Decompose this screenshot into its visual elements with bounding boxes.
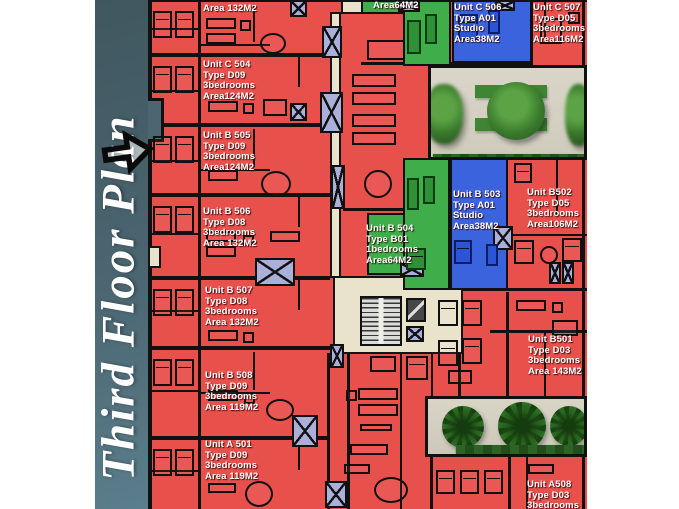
wall-segment bbox=[298, 57, 300, 87]
unit-label-line: Unit B502 bbox=[527, 188, 579, 199]
unit-label-line: Studio bbox=[454, 24, 501, 35]
bed-icon bbox=[175, 136, 194, 163]
sofa-icon bbox=[486, 244, 498, 266]
unit-label-line: Unit B 507 bbox=[205, 286, 259, 297]
unit-label-partial-top-green: Area64M2 bbox=[373, 1, 419, 12]
sofa-icon bbox=[407, 178, 419, 210]
unit-label-line: 1bedrooms bbox=[366, 245, 418, 256]
unit-label-line: 3bedrooms bbox=[533, 24, 585, 35]
table-icon bbox=[370, 356, 396, 372]
bed-icon bbox=[562, 238, 582, 262]
courtyard-garden-top bbox=[428, 65, 587, 160]
wall-segment bbox=[431, 354, 433, 398]
sofa-icon bbox=[423, 176, 435, 204]
unit-label-line: 3bedrooms bbox=[203, 152, 255, 163]
bed-icon bbox=[175, 449, 194, 476]
unit-label-line: 3bedrooms bbox=[203, 228, 257, 239]
sofa-icon bbox=[528, 464, 554, 474]
unit-label-line: 3bedrooms bbox=[527, 501, 579, 509]
elevator-icon bbox=[292, 415, 318, 447]
floor-plan-canvas: 3bedroomsArea 132M2 Area64M2 Unit C 506T… bbox=[148, 0, 587, 509]
bed-icon bbox=[153, 66, 172, 93]
unit-label-line: 3bedrooms bbox=[205, 392, 258, 403]
bed-icon bbox=[175, 359, 194, 386]
wall-segment bbox=[298, 197, 300, 227]
tree-icon bbox=[565, 84, 587, 146]
unit-label-c506: Unit C 506Type A01StudioArea38M2 bbox=[454, 3, 501, 45]
wall-segment bbox=[343, 208, 405, 211]
unit-label-b501: Unit B501Type D033bedroomsArea 143M2 bbox=[528, 335, 582, 377]
unit-label-line: Unit C 507 bbox=[533, 3, 585, 14]
palm-tree-icon bbox=[442, 406, 484, 448]
wall-segment bbox=[148, 346, 330, 350]
sofa-icon bbox=[350, 444, 388, 455]
palm-tree-icon bbox=[498, 402, 546, 450]
wall-segment bbox=[148, 276, 330, 280]
elevator-icon bbox=[406, 326, 424, 342]
bed-icon bbox=[175, 11, 194, 38]
elevator-icon bbox=[290, 103, 307, 121]
elevator-icon bbox=[330, 344, 344, 368]
courtyard-garden-bottom bbox=[425, 396, 587, 457]
bed-icon bbox=[153, 449, 172, 476]
wall-segment bbox=[148, 390, 198, 392]
table-icon bbox=[364, 170, 392, 198]
bed-icon bbox=[462, 300, 482, 326]
elevator-icon bbox=[549, 262, 561, 284]
unit-label-b502: Unit B502Type D053bedroomsArea106M2 bbox=[527, 188, 579, 230]
unit-label-line: Unit B 503 bbox=[453, 190, 500, 201]
bed-icon bbox=[153, 11, 172, 38]
elevator-icon bbox=[255, 258, 295, 286]
unit-label-line: 3bedrooms bbox=[527, 209, 579, 220]
hedge-icon bbox=[456, 445, 587, 456]
wall-segment bbox=[506, 292, 509, 396]
unit-label-line: Unit B501 bbox=[528, 335, 582, 346]
unit-label-b507: Unit B 507Type D083bedroomsArea 132M2 bbox=[205, 286, 259, 328]
table-icon bbox=[360, 424, 392, 431]
unit-label-line: Area64M2 bbox=[366, 256, 418, 267]
table-icon bbox=[263, 99, 287, 116]
sofa-icon bbox=[407, 20, 421, 54]
bed-icon bbox=[514, 163, 532, 183]
bed-icon bbox=[175, 289, 194, 316]
unit-label-line: Area38M2 bbox=[454, 35, 501, 46]
chair-icon bbox=[240, 20, 251, 31]
sofa-icon bbox=[206, 33, 236, 44]
unit-label-line: Area38M2 bbox=[453, 222, 500, 233]
table-icon bbox=[260, 33, 286, 54]
table-icon bbox=[448, 370, 472, 384]
sofa-icon bbox=[270, 231, 300, 242]
wall-segment bbox=[347, 354, 350, 509]
unit-label-line: Unit B 504 bbox=[366, 224, 418, 235]
unit-label-line: Unit A 501 bbox=[205, 440, 258, 451]
chair-icon bbox=[243, 332, 254, 343]
bed-icon bbox=[460, 470, 479, 494]
sofa-icon bbox=[358, 404, 398, 416]
wall-segment bbox=[148, 193, 330, 197]
page: Third Floor Plan 3bedroomsArea 132M2 Are… bbox=[0, 0, 679, 509]
unit-label-line: Area 119M2 bbox=[205, 403, 258, 414]
bed-icon bbox=[514, 240, 534, 264]
unit-label-b503: Unit B 503Type A01StudioArea38M2 bbox=[453, 190, 500, 232]
wall-segment bbox=[198, 0, 201, 509]
elevator-icon bbox=[562, 262, 574, 284]
table-icon bbox=[245, 481, 273, 507]
palm-tree-icon bbox=[550, 406, 587, 446]
unit-label-line: Unit C 506 bbox=[454, 3, 501, 14]
wall-segment bbox=[148, 53, 330, 57]
unit-label-line: Studio bbox=[453, 211, 500, 222]
unit-label-line: Unit B 505 bbox=[203, 131, 255, 142]
tree-icon bbox=[428, 84, 463, 144]
bed-icon bbox=[454, 240, 472, 264]
unit-label-line: Area124M2 bbox=[203, 92, 255, 103]
sofa-icon bbox=[206, 18, 236, 29]
entry-alcove bbox=[148, 246, 161, 268]
unit-label-line: Area64M2 bbox=[373, 1, 419, 12]
bed-icon bbox=[175, 66, 194, 93]
unit-label-line: Area 119M2 bbox=[205, 472, 258, 483]
sofa-icon bbox=[208, 330, 238, 341]
wall-segment bbox=[430, 457, 433, 509]
unit-label-line: Area 132M2 bbox=[203, 4, 257, 15]
unit-label-line: Unit A508 bbox=[527, 480, 579, 491]
sofa-icon bbox=[208, 483, 236, 493]
bed-icon bbox=[153, 359, 172, 386]
unit-label-line: 3bedrooms bbox=[528, 356, 582, 367]
right-arrow-icon bbox=[97, 123, 159, 180]
unit-label-line: Unit B 508 bbox=[205, 371, 258, 382]
bed-icon bbox=[436, 470, 455, 494]
wall-segment bbox=[508, 457, 511, 509]
table-icon bbox=[374, 477, 408, 503]
chair-icon bbox=[552, 302, 563, 313]
table-icon bbox=[261, 171, 291, 197]
hedge-icon bbox=[433, 154, 586, 160]
wall-segment bbox=[148, 123, 330, 127]
wall-segment bbox=[508, 234, 587, 236]
bed-icon bbox=[484, 470, 503, 494]
tree-icon bbox=[487, 82, 545, 140]
unit-label-line: Area106M2 bbox=[527, 220, 579, 231]
unit-label-c504: Unit C 504Type D093bedroomsArea124M2 bbox=[203, 60, 255, 102]
bed-icon bbox=[462, 338, 482, 364]
chair-icon bbox=[346, 390, 357, 401]
bed-icon bbox=[153, 289, 172, 316]
elevator-icon bbox=[320, 92, 343, 133]
sofa-icon bbox=[352, 114, 396, 127]
unit-label-line: Area124M2 bbox=[203, 163, 255, 174]
unit-label-line: 3bedrooms bbox=[205, 307, 259, 318]
unit-label-c507: Unit C 507Type D053bedroomsArea116M2 bbox=[533, 3, 585, 45]
sofa-icon bbox=[352, 92, 396, 105]
unit-label-b504: Unit B 504Type B011bedroomsArea64M2 bbox=[366, 224, 418, 266]
elevator-icon bbox=[331, 165, 345, 209]
unit-label-b506: Unit B 506Type D083bedroomsArea 132M2 bbox=[203, 207, 257, 249]
bed-icon bbox=[438, 300, 458, 326]
unit-label-b505: Unit B 505Type D093bedroomsArea124M2 bbox=[203, 131, 255, 173]
sofa-icon bbox=[516, 300, 546, 311]
bed-icon bbox=[406, 356, 428, 380]
unit-label-line: Area116M2 bbox=[533, 35, 585, 46]
unit-label-line: Unit C 504 bbox=[203, 60, 255, 71]
unit-label-a501: Unit A 501Type D093bedroomsArea 119M2 bbox=[205, 440, 258, 482]
chair-icon bbox=[243, 103, 254, 114]
elevator-icon bbox=[325, 481, 347, 508]
unit-label-a508: Unit A508Type D033bedrooms bbox=[527, 480, 579, 509]
bed-icon bbox=[153, 206, 172, 233]
unit-label-b508: Unit B 508Type D093bedroomsArea 119M2 bbox=[205, 371, 258, 413]
sofa-icon bbox=[344, 464, 370, 474]
duct-shaft bbox=[406, 298, 426, 322]
unit-label-line: 3bedrooms bbox=[205, 461, 258, 472]
sofa-icon bbox=[352, 74, 396, 87]
bed-icon bbox=[175, 206, 194, 233]
unit-label-line: Area 143M2 bbox=[528, 367, 582, 378]
elevator-icon bbox=[290, 0, 307, 17]
staircase bbox=[360, 296, 402, 346]
table-icon bbox=[540, 246, 558, 264]
table-icon bbox=[266, 399, 294, 421]
table-icon bbox=[367, 40, 405, 60]
wall-segment bbox=[148, 233, 198, 235]
unit-label-line: Area 132M2 bbox=[205, 318, 259, 329]
sofa-icon bbox=[425, 14, 437, 44]
sofa-icon bbox=[358, 388, 398, 400]
unit-label-line: Unit B 506 bbox=[203, 207, 257, 218]
unit-label-partial-top-left: 3bedroomsArea 132M2 bbox=[203, 0, 257, 14]
unit-label-line: 3bedrooms bbox=[203, 81, 255, 92]
bed-icon bbox=[438, 340, 458, 366]
elevator-icon bbox=[322, 26, 342, 58]
sofa-icon bbox=[352, 132, 396, 145]
unit-label-line: Area 132M2 bbox=[203, 239, 257, 250]
sofa-icon bbox=[208, 101, 238, 112]
wall-segment bbox=[298, 280, 300, 310]
